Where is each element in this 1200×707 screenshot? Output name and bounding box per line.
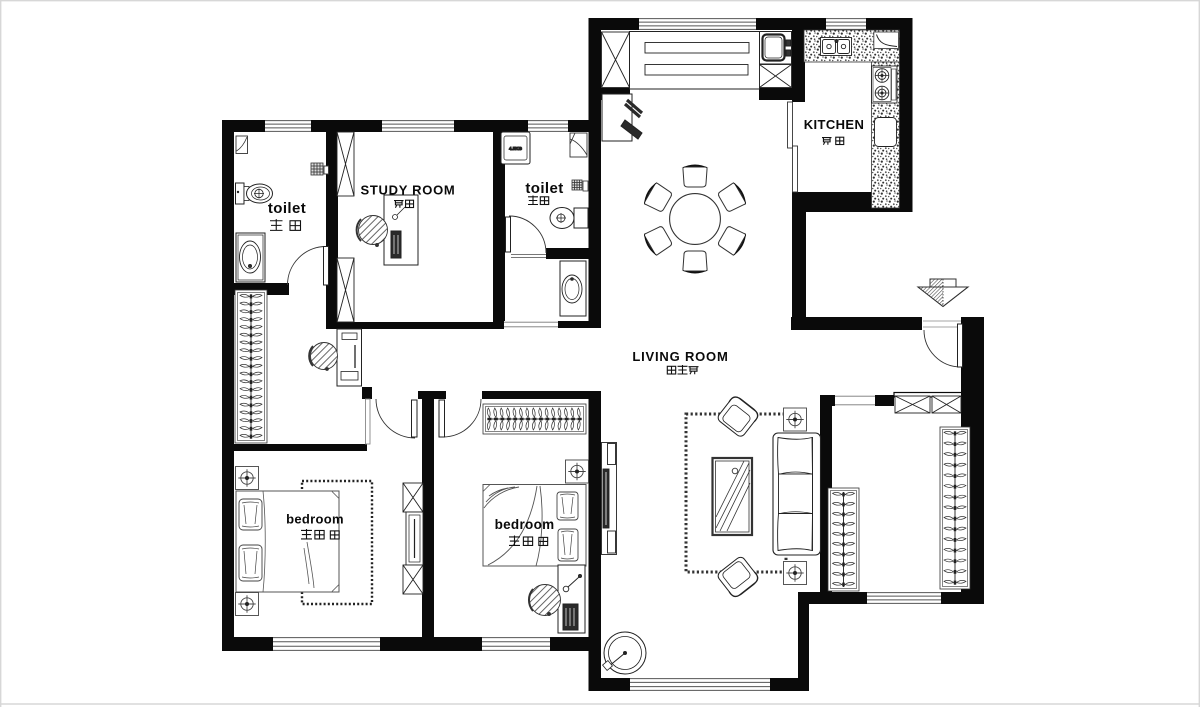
svg-text:bedroom: bedroom bbox=[286, 512, 344, 527]
svg-text:KITCHEN: KITCHEN bbox=[804, 117, 865, 132]
svg-text:LIVING ROOM: LIVING ROOM bbox=[632, 349, 728, 364]
svg-text:toilet: toilet bbox=[268, 200, 306, 217]
svg-text:toilet: toilet bbox=[525, 180, 563, 197]
svg-text:4.5KG: 4.5KG bbox=[509, 146, 523, 151]
svg-text:bedroom: bedroom bbox=[495, 517, 555, 532]
svg-text:STUDY ROOM: STUDY ROOM bbox=[361, 183, 456, 198]
